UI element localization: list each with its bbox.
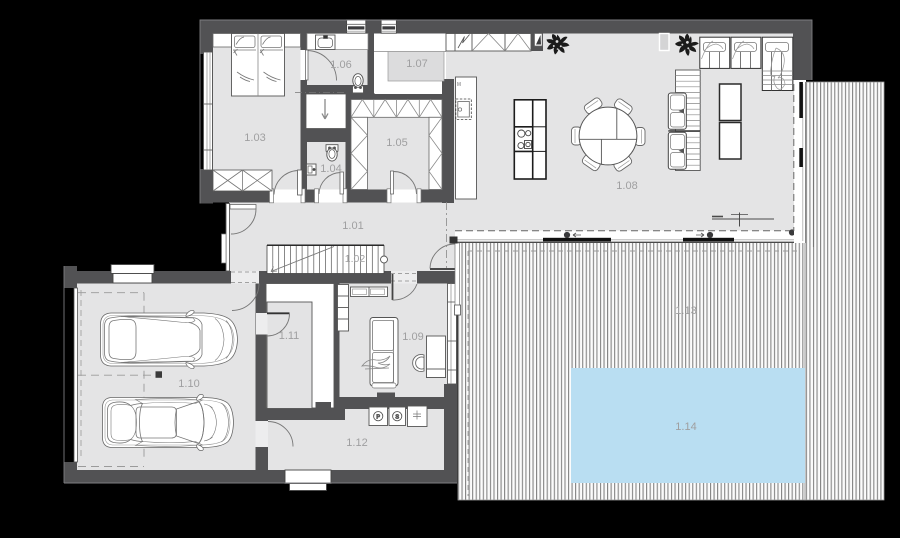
svg-text:P: P [376, 414, 380, 420]
svg-text:1.01: 1.01 [342, 220, 363, 232]
svg-text:1.14: 1.14 [675, 421, 696, 433]
svg-text:1.07: 1.07 [406, 58, 427, 70]
svg-text:1.02: 1.02 [345, 253, 366, 265]
svg-text:1.10: 1.10 [178, 378, 199, 390]
svg-text:1.08: 1.08 [616, 180, 637, 192]
svg-text:1.05: 1.05 [386, 137, 407, 149]
svg-text:1.13: 1.13 [675, 305, 696, 317]
svg-text:1.04: 1.04 [320, 163, 341, 175]
svg-text:M: M [457, 82, 461, 88]
svg-text:1.09: 1.09 [402, 331, 423, 343]
svg-text:1.11: 1.11 [279, 330, 300, 342]
svg-text:S: S [395, 414, 399, 420]
svg-text:1.03: 1.03 [244, 132, 265, 144]
svg-text:1.06: 1.06 [330, 59, 351, 71]
svg-text:1.12: 1.12 [346, 437, 367, 449]
